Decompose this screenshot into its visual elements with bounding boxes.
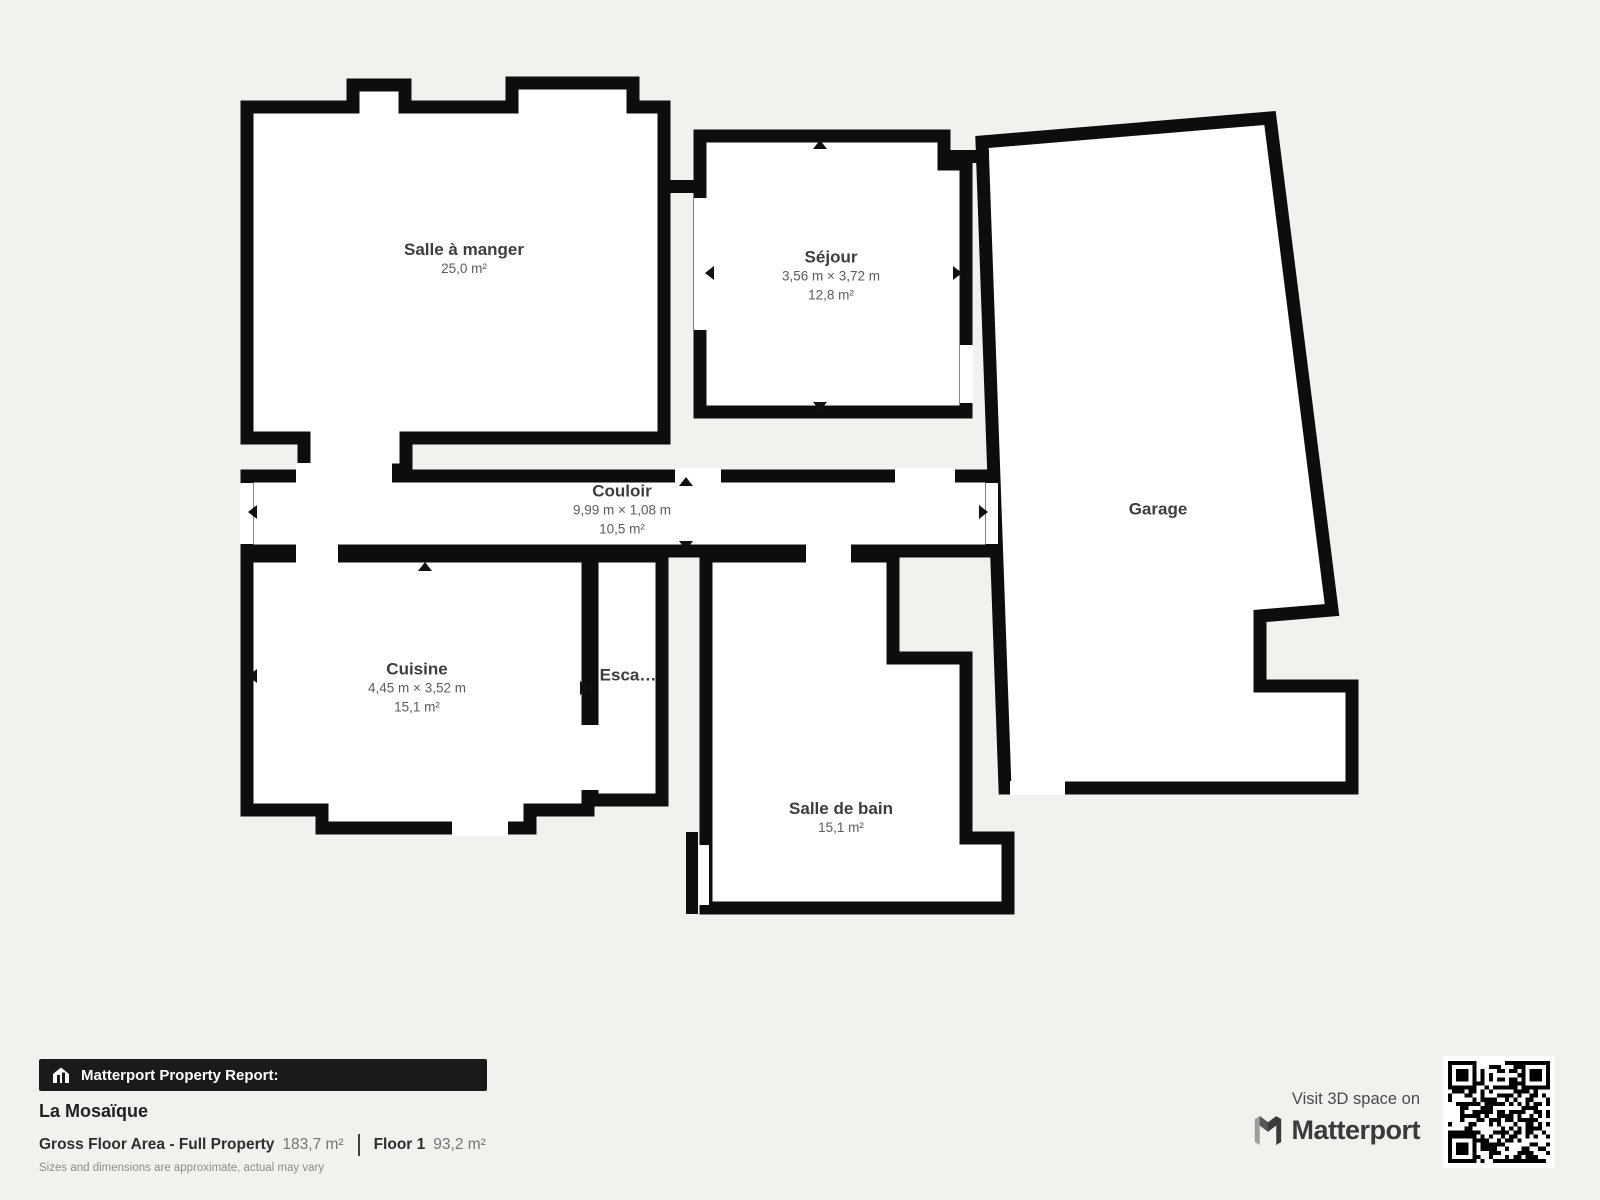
room-name: Garage	[1129, 500, 1188, 519]
door-opening	[694, 198, 707, 330]
door-opening	[895, 468, 955, 485]
floor-label: Floor 1	[374, 1136, 426, 1154]
room-salle-de-bain	[706, 556, 1008, 908]
room-area: 12,8 m²	[782, 286, 880, 305]
visit-3d-label: Visit 3D space on	[1180, 1090, 1420, 1109]
door-opening	[580, 725, 600, 790]
room-area: 15,1 m²	[789, 818, 893, 837]
report-banner: Matterport Property Report:	[39, 1059, 487, 1091]
room-label-escalier: Esca…	[600, 666, 657, 685]
room-area: 10,5 m²	[573, 520, 671, 539]
room-name: Cuisine	[368, 660, 466, 679]
door-opening	[986, 483, 998, 544]
room-name: Salle à manger	[404, 240, 524, 259]
floorplan-drawing	[0, 0, 1600, 1200]
gfa-value: 183,7 m²	[282, 1136, 343, 1154]
room-garage	[982, 118, 1352, 788]
qr-code-pattern	[1448, 1061, 1550, 1163]
qr-code	[1443, 1056, 1555, 1168]
wall-segment	[658, 180, 706, 193]
room-label-garage: Garage	[1129, 500, 1188, 519]
room-label-salle-de-bain: Salle de bain 15,1 m²	[789, 799, 893, 837]
floorplan-page: Salle à manger 25,0 m² Séjour 3,56 m × 3…	[0, 0, 1600, 1200]
door-opening	[1010, 781, 1065, 795]
room-dimensions: 9,99 m × 1,08 m	[573, 501, 671, 520]
door-opening	[806, 543, 851, 563]
door-opening	[296, 463, 392, 484]
door-opening	[296, 543, 338, 563]
gfa-label: Gross Floor Area - Full Property	[39, 1136, 274, 1154]
property-name: La Mosaïque	[39, 1101, 148, 1122]
divider	[358, 1134, 360, 1156]
room-name: Séjour	[782, 248, 880, 267]
area-stats: Gross Floor Area - Full Property 183,7 m…	[39, 1134, 486, 1156]
wall-segment	[944, 150, 989, 163]
room-label-cuisine: Cuisine 4,45 m × 3,52 m 15,1 m²	[368, 660, 466, 717]
room-area: 25,0 m²	[404, 259, 524, 278]
room-dimensions: 3,56 m × 3,72 m	[782, 267, 880, 286]
room-label-couloir: Couloir 9,99 m × 1,08 m 10,5 m²	[573, 482, 671, 539]
matterport-wordmark: Matterport	[1292, 1115, 1421, 1146]
room-dimensions: 4,45 m × 3,52 m	[368, 679, 466, 698]
door-opening	[699, 845, 709, 905]
room-name: Couloir	[573, 482, 671, 501]
matterport-logo-icon	[1253, 1114, 1283, 1147]
door-opening	[452, 820, 508, 836]
matterport-brand: Matterport	[1180, 1112, 1420, 1148]
wall-segment	[686, 832, 698, 914]
room-name: Salle de bain	[789, 799, 893, 818]
disclaimer-text: Sizes and dimensions are approximate, ac…	[39, 1162, 324, 1174]
room-name: Esca…	[600, 666, 657, 685]
floor-value: 93,2 m²	[433, 1136, 486, 1154]
room-label-salle-a-manger: Salle à manger 25,0 m²	[404, 240, 524, 278]
house-report-icon	[51, 1066, 71, 1084]
report-banner-label: Matterport Property Report:	[81, 1067, 279, 1084]
room-label-sejour: Séjour 3,56 m × 3,72 m 12,8 m²	[782, 248, 880, 305]
room-area: 15,1 m²	[368, 698, 466, 717]
door-opening	[960, 345, 973, 403]
